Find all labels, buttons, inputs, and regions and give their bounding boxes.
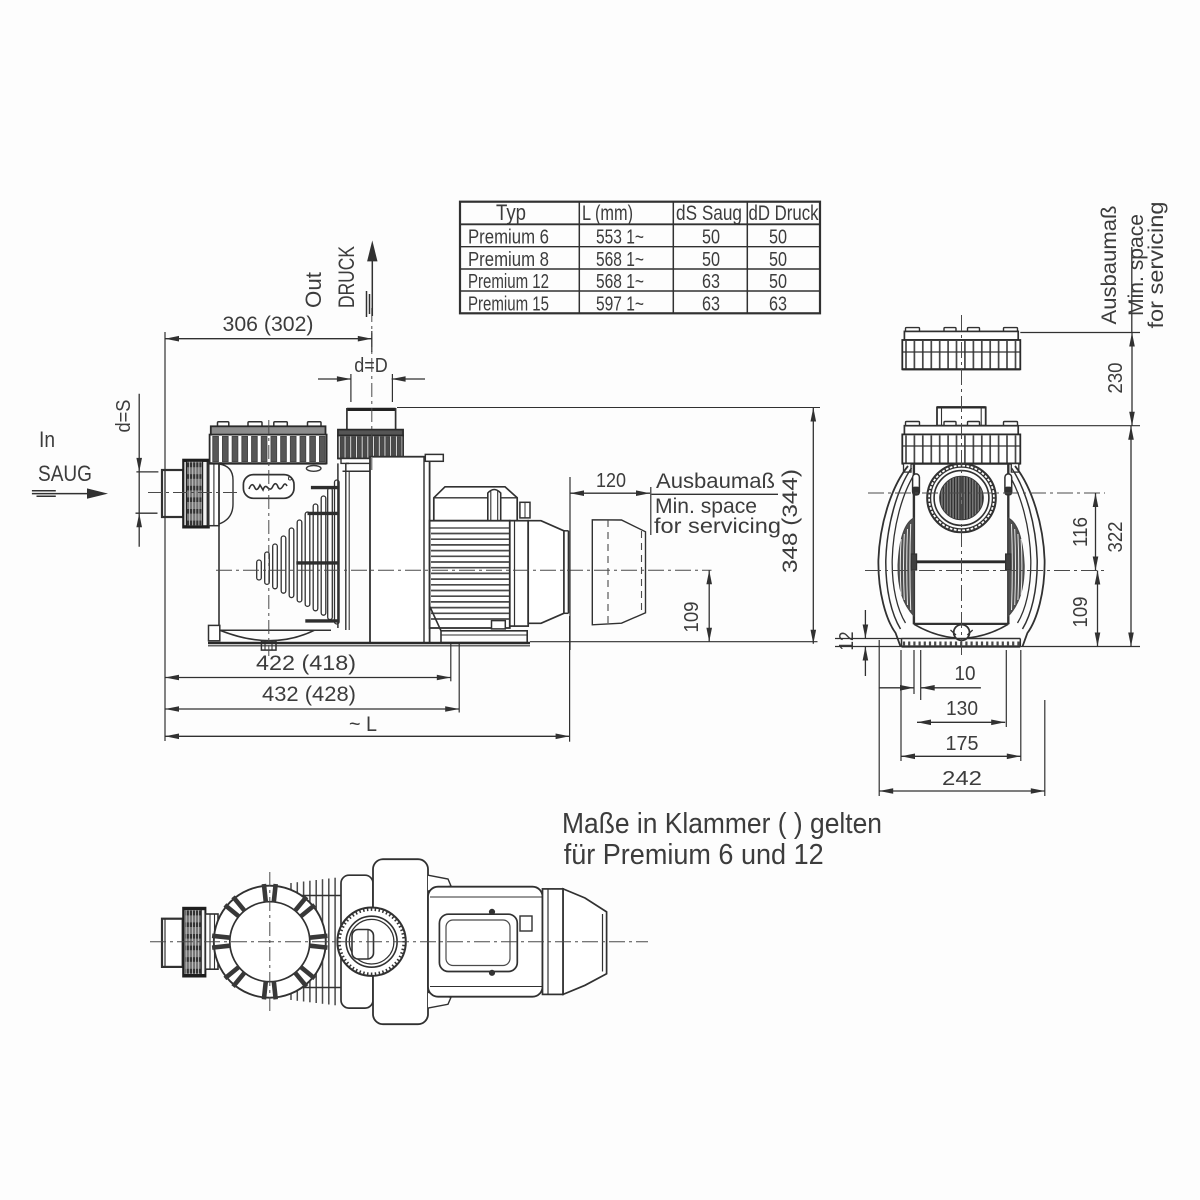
svg-text:dS Saug: dS Saug <box>676 202 742 225</box>
svg-text:for servicing: for servicing <box>1145 202 1168 329</box>
svg-text:568 1~: 568 1~ <box>596 249 644 271</box>
svg-text:306 (302): 306 (302) <box>223 313 314 336</box>
svg-text:422 (418): 422 (418) <box>256 652 356 675</box>
svg-text:Premium 12: Premium 12 <box>468 271 549 293</box>
svg-text:10: 10 <box>955 663 976 685</box>
svg-text:SAUG: SAUG <box>38 461 92 486</box>
svg-text:Premium 8: Premium 8 <box>468 249 549 271</box>
svg-text:dD Druck: dD Druck <box>749 202 819 225</box>
svg-text:~ L: ~ L <box>349 713 377 736</box>
svg-text:230: 230 <box>1105 363 1127 394</box>
svg-text:Typ: Typ <box>496 200 526 225</box>
svg-text:116: 116 <box>1070 517 1092 547</box>
svg-text:568 1~: 568 1~ <box>596 271 644 293</box>
svg-text:597 1~: 597 1~ <box>596 293 644 315</box>
svg-text:50: 50 <box>769 249 787 271</box>
svg-text:109: 109 <box>681 602 703 633</box>
svg-text:50: 50 <box>702 249 720 271</box>
svg-text:63: 63 <box>702 293 720 315</box>
svg-text:50: 50 <box>702 227 720 249</box>
svg-text:322: 322 <box>1105 522 1127 553</box>
svg-text:130: 130 <box>946 698 978 720</box>
svg-text:63: 63 <box>702 271 720 293</box>
svg-text:Premium 15: Premium 15 <box>468 293 549 315</box>
svg-text:Premium 6: Premium 6 <box>468 227 549 249</box>
svg-text:Ausbaumaß: Ausbaumaß <box>656 470 775 493</box>
svg-text:L (mm): L (mm) <box>582 202 633 225</box>
svg-text:50: 50 <box>769 271 787 293</box>
svg-text:109: 109 <box>1070 597 1092 628</box>
svg-text:d=S: d=S <box>113 400 135 433</box>
svg-text:348 (344): 348 (344) <box>779 469 802 573</box>
svg-text:for servicing: for servicing <box>654 515 781 538</box>
svg-text:Ausbaumaß: Ausbaumaß <box>1098 206 1121 325</box>
svg-text:242: 242 <box>942 768 982 790</box>
svg-text:In: In <box>39 427 55 452</box>
svg-text:Maße in Klammer ( ) gelten: Maße in Klammer ( ) gelten <box>562 808 882 840</box>
svg-text:DRUCK: DRUCK <box>334 246 359 308</box>
svg-text:63: 63 <box>769 293 787 315</box>
svg-text:d=D: d=D <box>354 355 388 377</box>
svg-text:432 (428): 432 (428) <box>262 683 356 706</box>
svg-text:120: 120 <box>596 470 626 492</box>
svg-text:175: 175 <box>946 733 979 755</box>
svg-text:12: 12 <box>836 632 858 651</box>
svg-text:für Premium 6 und 12: für Premium 6 und 12 <box>564 839 824 871</box>
svg-text:553 1~: 553 1~ <box>596 227 644 249</box>
svg-text:50: 50 <box>769 227 787 249</box>
svg-text:Out: Out <box>301 272 326 308</box>
